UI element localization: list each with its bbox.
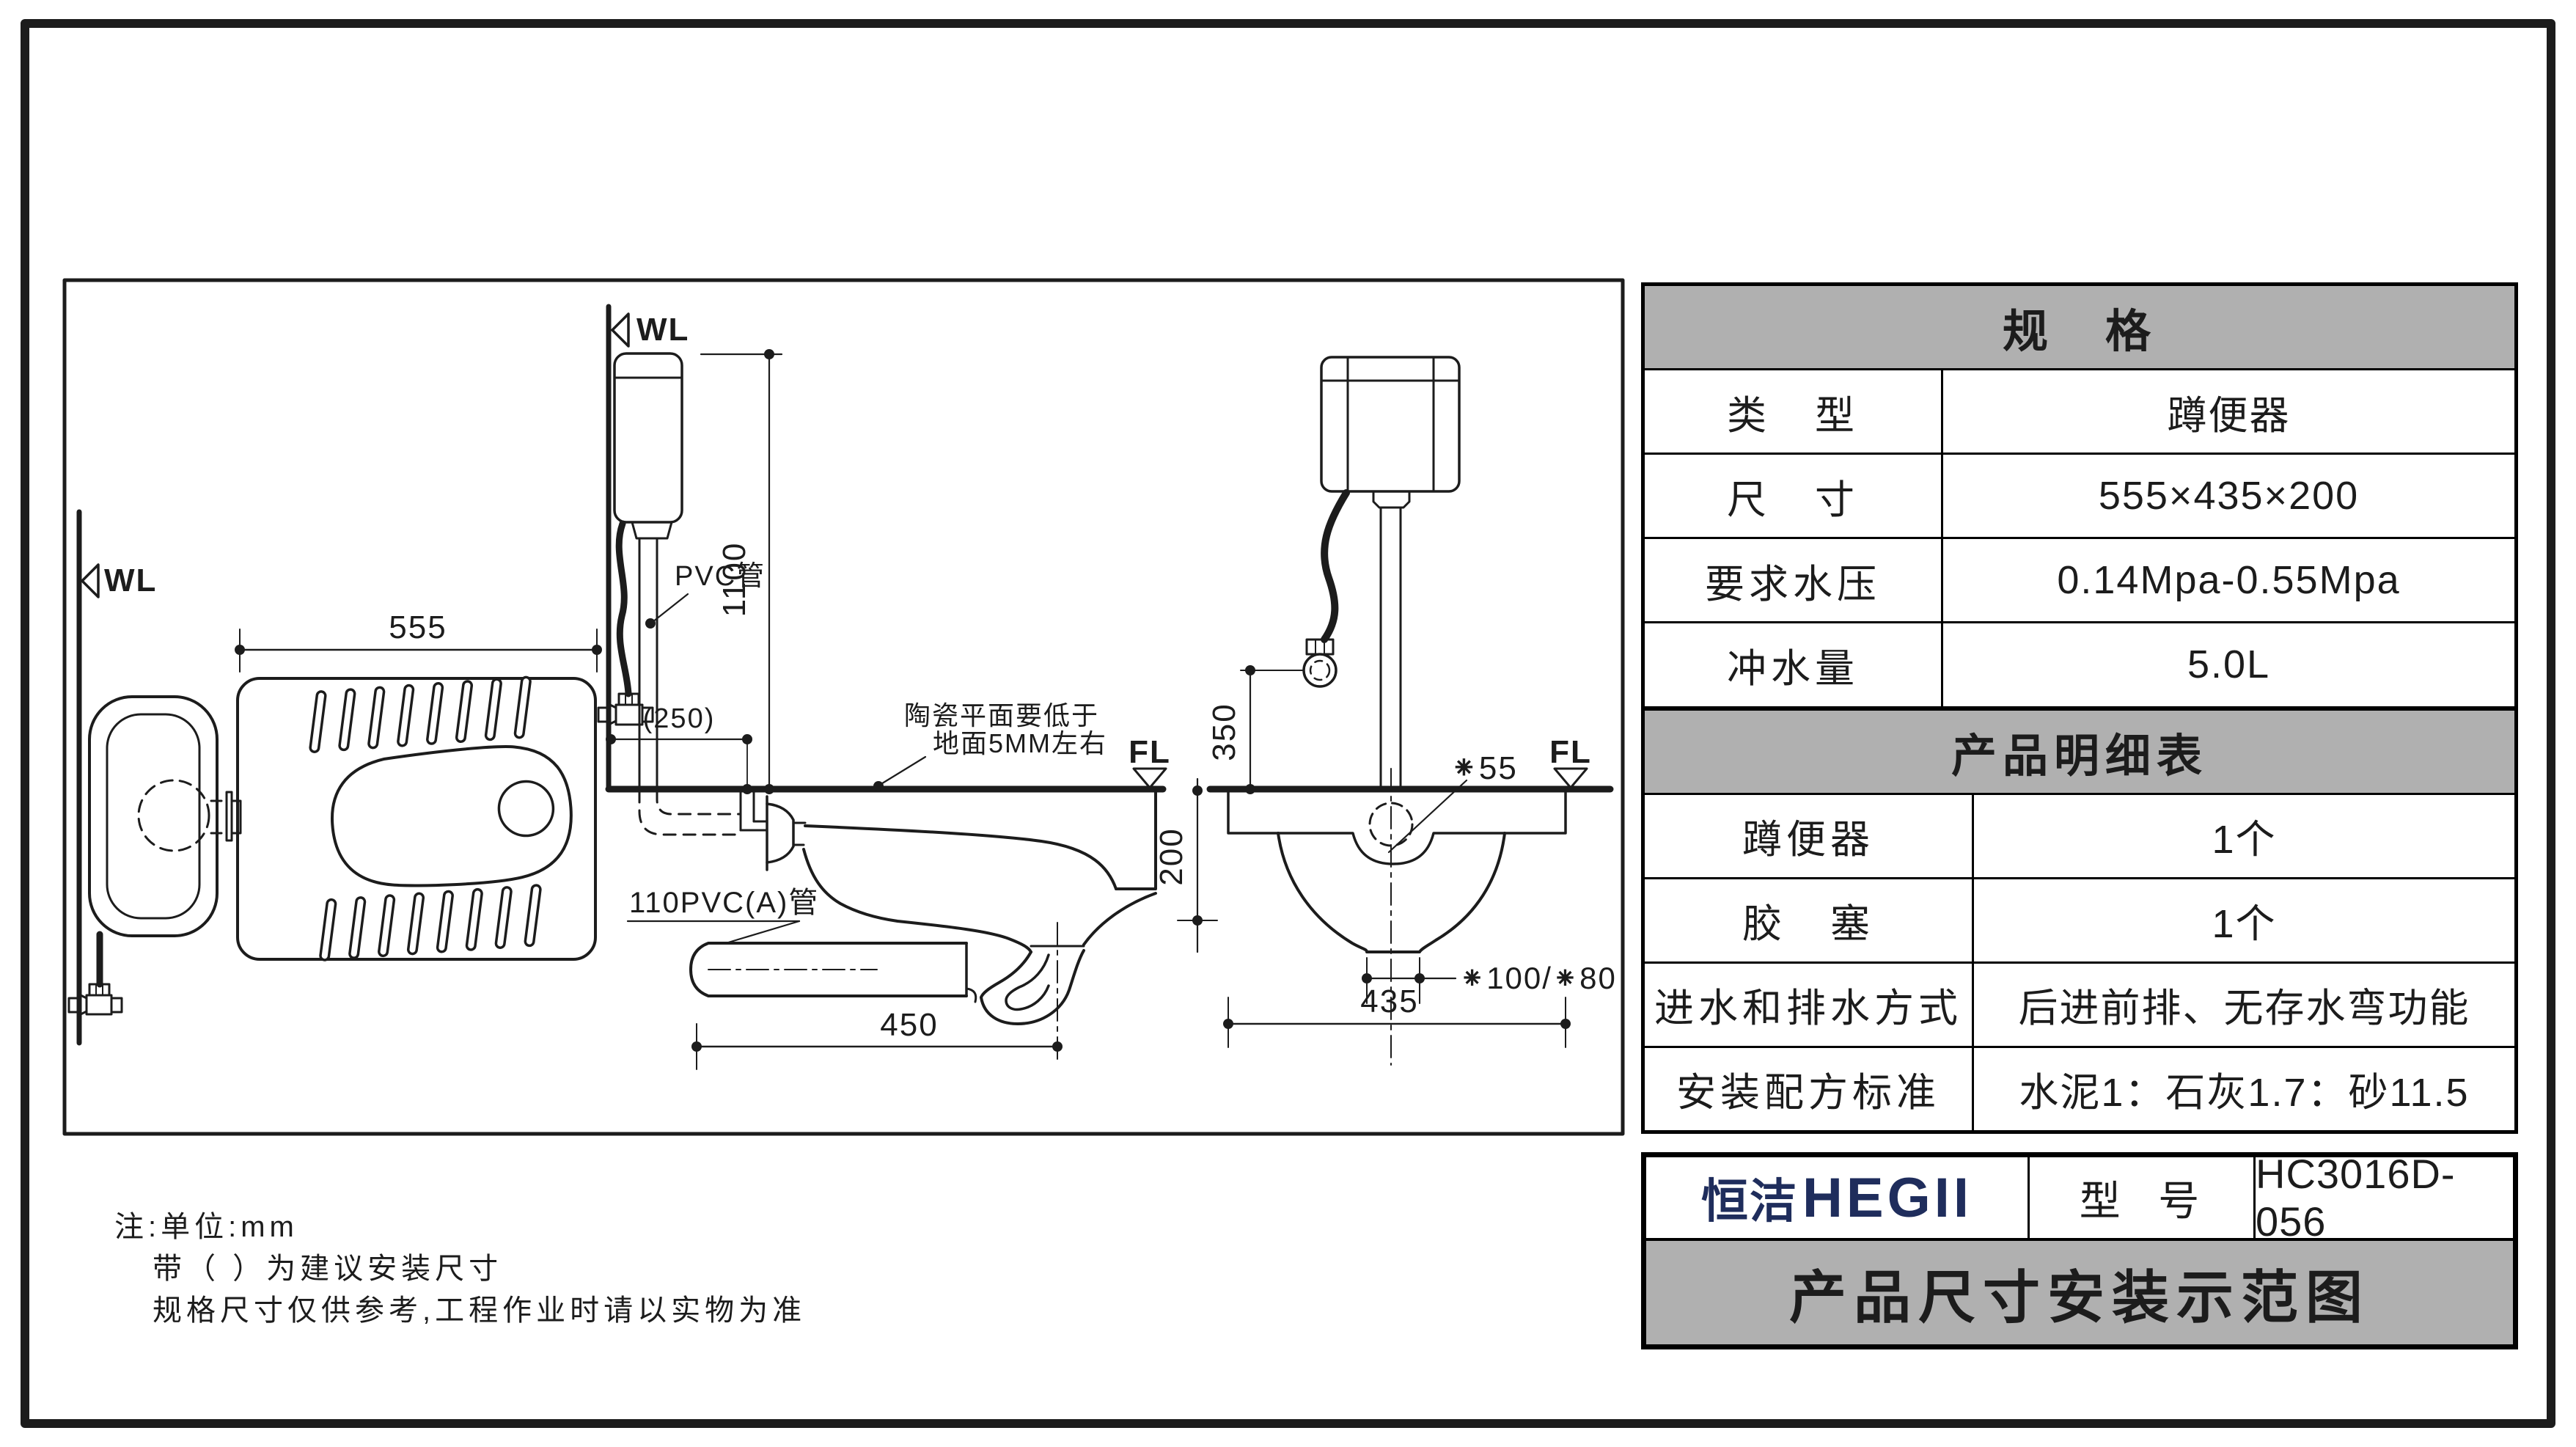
table-row: 尺 寸 555×435×200 — [1645, 455, 2514, 539]
table-row: 安装配方标准 水泥1：石灰1.7：砂11.5 — [1645, 1048, 2514, 1130]
wl-marker-label: WL — [636, 312, 689, 348]
brand-en: HEGII — [1802, 1166, 1973, 1230]
brand-cn: 恒洁 — [1701, 1164, 1798, 1231]
detail-row-label: 胶 塞 — [1645, 879, 1974, 961]
dim-drain-dia: ⁕55 — [1450, 750, 1518, 786]
detail-row-value: 后进前排、无存水弯功能 — [1974, 964, 2514, 1046]
label-110pvc-pipe: 110PVC(A)管 — [629, 887, 819, 919]
fl-triangle-icon — [1555, 769, 1587, 788]
spec-row-value: 0.14Mpa-0.55Mpa — [1943, 539, 2514, 621]
dim-250: (250) — [643, 703, 716, 734]
dim-435: 435 — [1360, 983, 1418, 1019]
detail-row-label: 安装配方标准 — [1645, 1048, 1974, 1130]
fl-triangle-icon — [1134, 769, 1166, 788]
dim-450: 450 — [880, 1007, 938, 1043]
spec-table-title: 规 格 — [1645, 286, 2514, 370]
table-row: 冲水量 5.0L — [1645, 623, 2514, 708]
model-label: 型 号 — [2030, 1157, 2256, 1238]
dim-outlet-dia: ⁕100/⁕80 — [1459, 961, 1617, 995]
note-line: 规格尺寸仅供参考,工程作业时请以实物为准 — [114, 1290, 806, 1332]
label-ceramic-note-1: 陶瓷平面要低于 — [904, 700, 1099, 730]
detail-row-value: 1个 — [1974, 795, 2514, 877]
spec-row-value: 5.0L — [1943, 623, 2514, 706]
note-line: 注:单位:mm — [114, 1206, 806, 1248]
spec-row-label: 要求水压 — [1645, 539, 1943, 621]
label-pvc-pipe: PVC管 — [675, 561, 766, 592]
wl-triangle-icon — [612, 314, 628, 346]
notes: 注:单位:mm 带（ ）为建议安装尺寸 规格尺寸仅供参考,工程作业时请以实物为准 — [114, 1206, 806, 1332]
spec-and-detail-table: 规 格 类 型 蹲便器 尺 寸 555×435×200 要求水压 0.14Mpa… — [1641, 282, 2518, 1134]
detail-row-label: 进水和排水方式 — [1645, 964, 1974, 1046]
spec-row-value: 蹲便器 — [1943, 370, 2514, 453]
spec-row-label: 类 型 — [1645, 370, 1943, 453]
fl-marker-label: FL — [1549, 734, 1592, 770]
sheet-title: 产品尺寸安装示范图 — [1646, 1241, 2513, 1344]
table-row: 胶 塞 1个 — [1645, 879, 2514, 964]
model-value: HC3016D-056 — [2256, 1157, 2513, 1238]
wl-triangle-icon — [82, 565, 98, 597]
table-row: 进水和排水方式 后进前排、无存水弯功能 — [1645, 964, 2514, 1048]
detail-row-label: 蹲便器 — [1645, 795, 1974, 877]
fl-marker-label: FL — [1129, 734, 1171, 770]
table-row: 要求水压 0.14Mpa-0.55Mpa — [1645, 539, 2514, 623]
dim-555: 555 — [389, 609, 447, 645]
detail-table-title: 产品明细表 — [1645, 708, 2514, 795]
spec-row-label: 冲水量 — [1645, 623, 1943, 706]
hegii-logo: 恒洁 HEGII — [1646, 1157, 2030, 1238]
wl-marker-label: WL — [104, 563, 157, 598]
front-elevation — [1228, 357, 1587, 1065]
dim-200: 200 — [1153, 827, 1189, 885]
spec-row-value: 555×435×200 — [1943, 455, 2514, 537]
label-ceramic-note-2: 地面5MM左右 — [933, 728, 1107, 758]
note-line: 带（ ）为建议安装尺寸 — [114, 1248, 806, 1290]
spec-row-label: 尺 寸 — [1645, 455, 1943, 537]
title-block: 恒洁 HEGII 型 号 HC3016D-056 产品尺寸安装示范图 — [1641, 1152, 2518, 1349]
dim-350: 350 — [1206, 703, 1242, 761]
detail-row-value: 水泥1：石灰1.7：砂11.5 — [1974, 1048, 2514, 1130]
table-row: 类 型 蹲便器 — [1645, 370, 2514, 455]
detail-row-value: 1个 — [1974, 879, 2514, 961]
table-row: 蹲便器 1个 — [1645, 795, 2514, 879]
pan-plan-view — [238, 629, 597, 959]
